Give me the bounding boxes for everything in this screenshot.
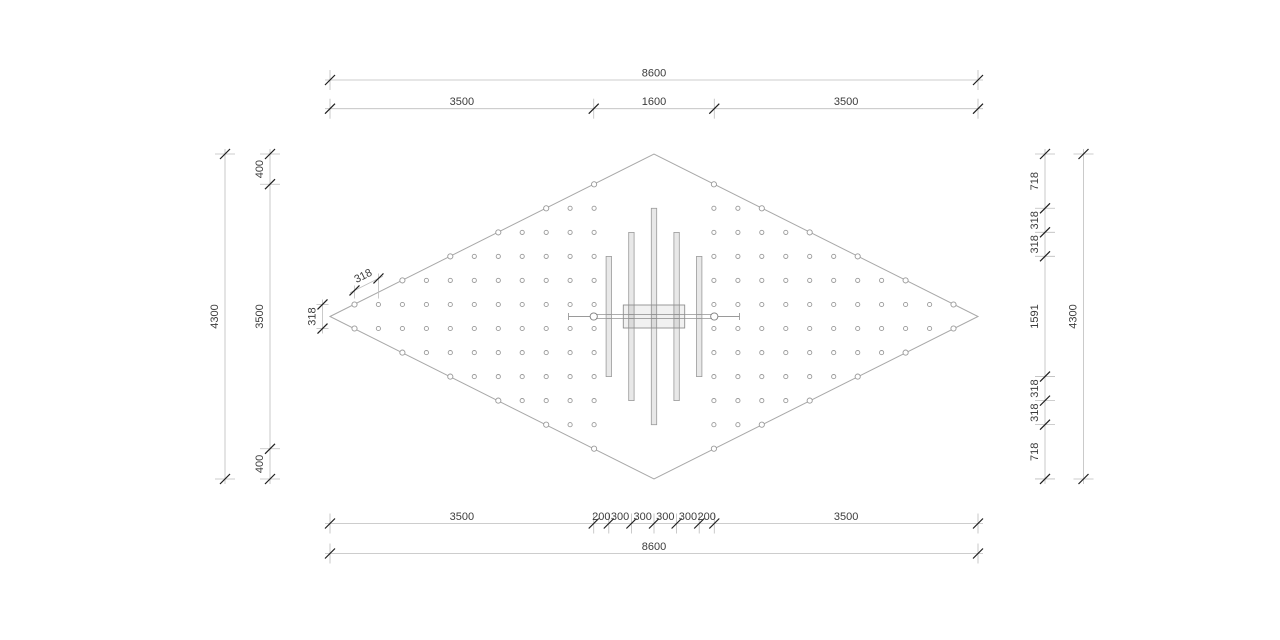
pile-dot (736, 206, 740, 210)
pile-dot (472, 326, 476, 330)
pile-dot (544, 375, 548, 379)
pile-dot (760, 254, 764, 258)
dim-label: 8600 (642, 68, 666, 80)
edge-pile-dot (592, 446, 597, 451)
pile-dot (568, 206, 572, 210)
pile-dot (808, 254, 812, 258)
pile-dot (760, 230, 764, 234)
pile-dot (544, 399, 548, 403)
pile-dot (568, 302, 572, 306)
pile-dot (568, 351, 572, 355)
pile-dot (544, 254, 548, 258)
pile-dot (808, 351, 812, 355)
pile-dot (448, 326, 452, 330)
pile-dot (736, 326, 740, 330)
pile-dot (472, 375, 476, 379)
edge-pile-dot (352, 326, 357, 331)
pile-dot (760, 351, 764, 355)
dim-label: 1600 (642, 96, 666, 108)
pile-dot (424, 326, 428, 330)
pile-dot (496, 326, 500, 330)
pile-dot (592, 399, 596, 403)
edge-pile-dot (592, 182, 597, 187)
pile-dot (712, 423, 716, 427)
pile-dot (592, 302, 596, 306)
pile-dot (496, 351, 500, 355)
pile-dot (472, 351, 476, 355)
edge-pile-dot (400, 278, 405, 283)
pile-dot (520, 230, 524, 234)
edge-pile-dot (759, 206, 764, 211)
dim-top-overall: 8600 (325, 68, 983, 91)
pile-dot (712, 326, 716, 330)
dim-label: 300 (679, 511, 697, 523)
dim-left-spans: 4003500400 (254, 149, 280, 484)
dim-label: 718 (1029, 172, 1041, 190)
dim-label: 200 (592, 511, 610, 523)
pile-dot (832, 254, 836, 258)
dim-label: 300 (611, 511, 629, 523)
pile-dot (496, 254, 500, 258)
pile-dot (736, 375, 740, 379)
dim-label: 318 (352, 267, 374, 286)
pile-dot (520, 326, 524, 330)
pile-dot (712, 278, 716, 282)
pile-dot (424, 302, 428, 306)
dim-label: 3500 (254, 304, 266, 328)
pile-dot (592, 423, 596, 427)
pile-dot (424, 278, 428, 282)
center-structure (569, 208, 740, 424)
pile-dot (760, 326, 764, 330)
edge-pile-dot (448, 374, 453, 379)
edge-pile-dot (903, 278, 908, 283)
dim-label: 318 (1029, 235, 1041, 253)
dim-bottom-spans: 35002003003003003002003500 (325, 511, 983, 534)
pile-dot (760, 278, 764, 282)
vertical-bar (606, 256, 611, 376)
dim-vertex-vertical: 318 (307, 299, 329, 333)
edge-pile-dot (496, 230, 501, 235)
pile-dot (400, 302, 404, 306)
pile-dot (592, 375, 596, 379)
pile-dot (784, 254, 788, 258)
dim-label: 1591 (1029, 304, 1041, 328)
pile-dot (568, 399, 572, 403)
pile-dot (544, 326, 548, 330)
pile-dot (472, 254, 476, 258)
pile-dot (880, 302, 884, 306)
pile-dot (784, 399, 788, 403)
pile-dot (400, 326, 404, 330)
dim-label: 400 (254, 455, 266, 473)
pile-dot (736, 399, 740, 403)
plan-drawing-svg: 8600350016003500350020030030030030020035… (0, 0, 1280, 640)
edge-pile-dot (711, 182, 716, 187)
dim-vertex-edge: 318 (349, 267, 383, 299)
pile-dot (544, 302, 548, 306)
edge-pile-dot (544, 422, 549, 427)
edge-pile-dot (807, 398, 812, 403)
pile-dot (568, 230, 572, 234)
pile-dot (784, 326, 788, 330)
pile-dot (712, 351, 716, 355)
dim-label: 318 (1029, 379, 1041, 397)
edge-pile-dot (400, 350, 405, 355)
dim-right-overall: 4300 (1068, 149, 1094, 484)
dim-label: 300 (634, 511, 652, 523)
pile-dot (592, 206, 596, 210)
pile-dot (808, 302, 812, 306)
pile-dot (856, 351, 860, 355)
edge-pile-dot (711, 446, 716, 451)
pile-dot (760, 375, 764, 379)
edge-pile-dot (448, 254, 453, 259)
edge-pile-dot (544, 206, 549, 211)
pile-dot (544, 278, 548, 282)
dim-label: 3500 (834, 511, 858, 523)
pile-dot (520, 254, 524, 258)
dim-bottom-overall: 8600 (325, 541, 983, 564)
dim-label: 318 (307, 307, 319, 325)
pile-dot (712, 230, 716, 234)
pile-dot (784, 375, 788, 379)
pile-dot (760, 399, 764, 403)
pile-dot (376, 302, 380, 306)
pile-dot (808, 326, 812, 330)
dim-label: 318 (1029, 403, 1041, 421)
pile-dot (856, 278, 860, 282)
pile-dot (784, 302, 788, 306)
pile-dot (520, 302, 524, 306)
pile-dot (736, 254, 740, 258)
pile-dot (592, 278, 596, 282)
pile-dot (880, 326, 884, 330)
pile-dot (448, 302, 452, 306)
pile-dot (712, 206, 716, 210)
edge-pile-dot (855, 374, 860, 379)
edge-pile-dot (951, 326, 956, 331)
pile-dot (520, 351, 524, 355)
vertical-bar (697, 256, 702, 376)
pile-dot (856, 302, 860, 306)
pile-dot (376, 326, 380, 330)
edge-pile-dot (496, 398, 501, 403)
pile-dot (712, 302, 716, 306)
dim-label: 3500 (450, 96, 474, 108)
pile-dot (736, 230, 740, 234)
edge-pile-dot (951, 302, 956, 307)
pile-dot (880, 351, 884, 355)
pile-dot (592, 254, 596, 258)
pile-dot (808, 375, 812, 379)
edge-pile-dot (759, 422, 764, 427)
pile-dot (832, 375, 836, 379)
pile-dot (928, 302, 932, 306)
dim-label: 300 (656, 511, 674, 523)
pile-dot (784, 351, 788, 355)
pile-dot (568, 254, 572, 258)
pile-dot (592, 351, 596, 355)
edge-pile-dot (807, 230, 812, 235)
pile-dot (472, 278, 476, 282)
pile-dot (520, 278, 524, 282)
pile-dot (712, 254, 716, 258)
dim-label: 318 (1029, 211, 1041, 229)
dim-top-spans: 350016003500 (325, 96, 983, 119)
pile-dot (856, 326, 860, 330)
dim-label: 3500 (834, 96, 858, 108)
pile-dot (736, 423, 740, 427)
pile-dot (832, 351, 836, 355)
pile-dot (784, 278, 788, 282)
dim-label: 718 (1029, 443, 1041, 461)
dim-label: 400 (254, 160, 266, 178)
pile-dot (448, 278, 452, 282)
pile-dot (712, 399, 716, 403)
pile-dot (808, 278, 812, 282)
pile-dot (832, 302, 836, 306)
pile-dot (736, 278, 740, 282)
dim-label: 4300 (209, 304, 221, 328)
dim-label: 4300 (1068, 304, 1080, 328)
pile-dot (592, 230, 596, 234)
pile-dot (520, 399, 524, 403)
pile-dot (712, 375, 716, 379)
pile-dot (760, 302, 764, 306)
beam-end-circle (590, 313, 597, 320)
pile-dot (928, 326, 932, 330)
pile-dot (736, 351, 740, 355)
pile-dot (568, 423, 572, 427)
pile-dot (520, 375, 524, 379)
edge-pile-dot (903, 350, 908, 355)
pile-layout-plan: 8600350016003500350020030030030030020035… (0, 0, 1280, 640)
pile-dot (448, 351, 452, 355)
dim-left-overall: 4300 (209, 149, 235, 484)
pile-dot (736, 302, 740, 306)
dim-right-spans: 7183183181591318318718 (1029, 149, 1055, 484)
pile-dot (496, 278, 500, 282)
pile-dot (832, 326, 836, 330)
pile-dot (880, 278, 884, 282)
pile-dot (568, 278, 572, 282)
dim-label: 200 (698, 511, 716, 523)
pile-dot (784, 230, 788, 234)
pile-dot (544, 351, 548, 355)
pile-dot (496, 302, 500, 306)
dim-label: 3500 (450, 511, 474, 523)
pile-dot (496, 375, 500, 379)
pile-dot (904, 302, 908, 306)
pile-dot (904, 326, 908, 330)
edge-pile-dot (855, 254, 860, 259)
pile-dot (832, 278, 836, 282)
pile-dot (592, 326, 596, 330)
pile-dot (544, 230, 548, 234)
dim-label: 8600 (642, 541, 666, 553)
beam-end-circle (711, 313, 718, 320)
pile-dot (568, 326, 572, 330)
pile-dot (568, 375, 572, 379)
pile-dot (424, 351, 428, 355)
edge-pile-dot (352, 302, 357, 307)
pile-cap (623, 305, 684, 328)
pile-dot (472, 302, 476, 306)
